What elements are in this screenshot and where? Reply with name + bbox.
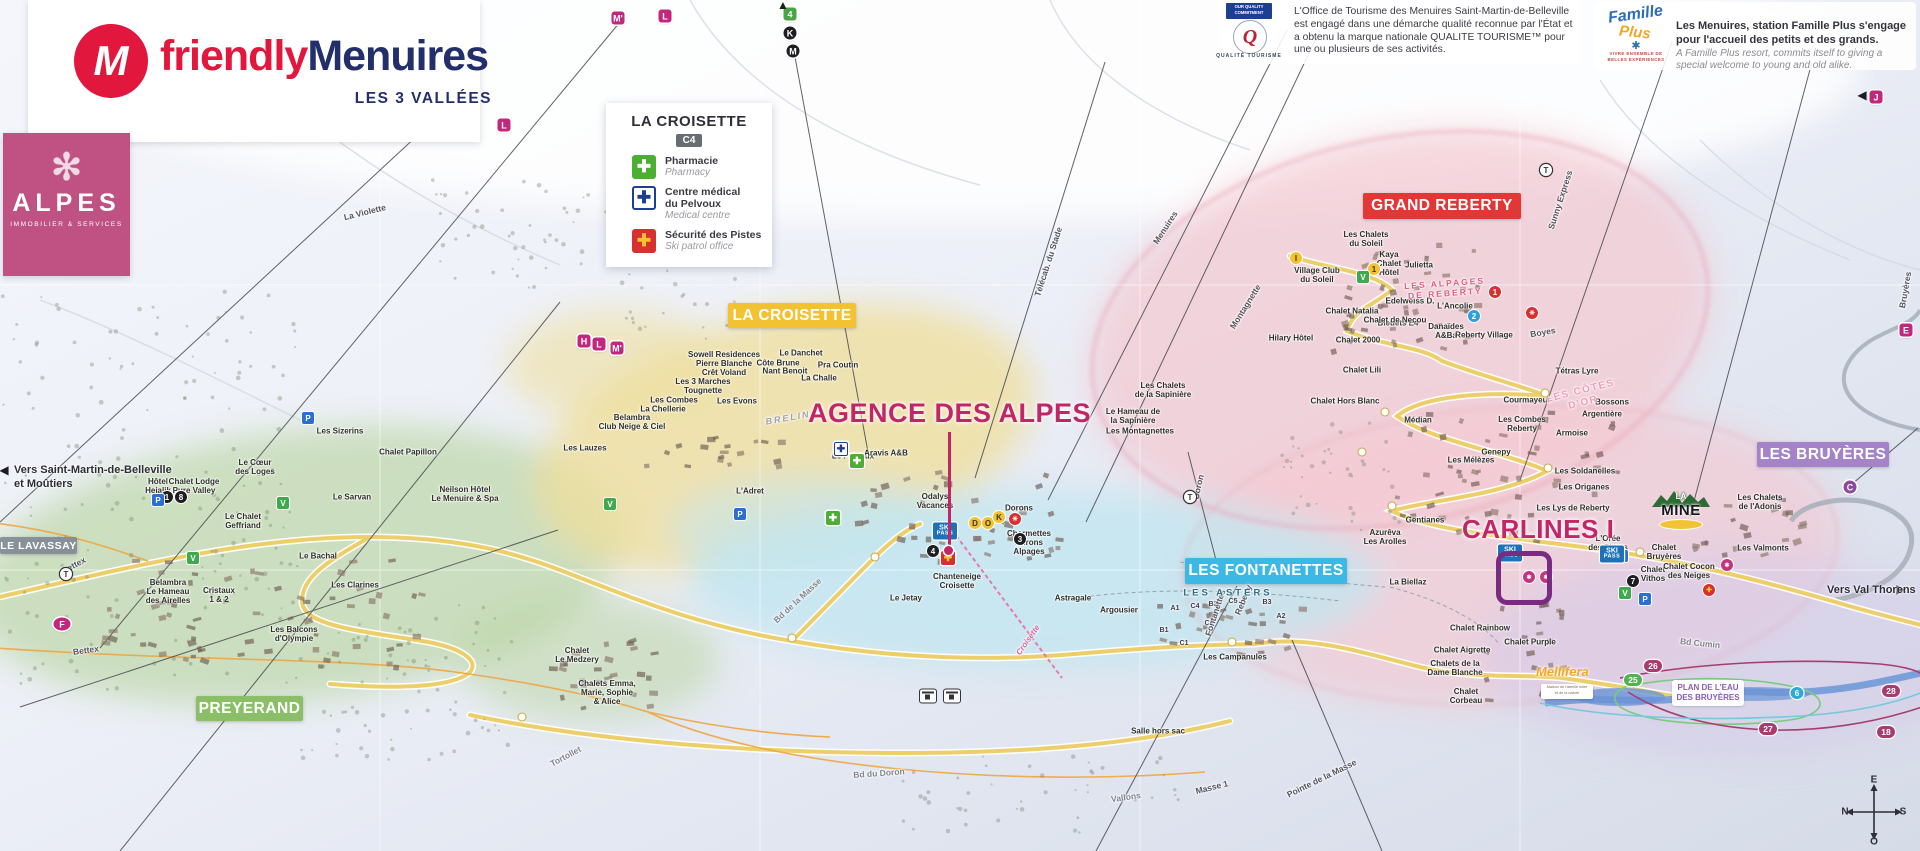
road-node	[1388, 502, 1397, 511]
way-label: Reberty	[1234, 583, 1255, 616]
lift-badge: E	[1900, 324, 1913, 337]
map-label: Danaïdes A&Ba	[1428, 322, 1464, 340]
map-label: Bossons	[1595, 397, 1629, 406]
alpes-snowflake-icon: ✻	[3, 149, 130, 187]
map-edge-arrow-icon: ◀	[1857, 88, 1866, 102]
way-label: Bettex	[72, 644, 99, 657]
way-label: Bd de la Masse	[772, 576, 824, 625]
famille-plus-tagline: VIVRE ENSEMBLE DE BELLES EXPÉRIENCES	[1600, 51, 1672, 63]
ski-pass-line2: PASS	[933, 532, 957, 538]
number-dot: 2	[1468, 310, 1480, 322]
compass-cross-icon	[1843, 778, 1905, 844]
map-label: Chalet Natalia	[1326, 306, 1379, 315]
map-label: Genepy	[1481, 447, 1510, 456]
road-node	[1228, 638, 1237, 647]
way-label: Menuires	[1152, 210, 1181, 247]
road-node	[788, 634, 797, 643]
direction-saint-martin: Vers Saint-Martin-de-Belleville et Moûti…	[14, 464, 172, 492]
gondola-icon	[943, 689, 961, 704]
la-mine-banner-oval	[1660, 520, 1702, 529]
map-label: Le Cœur des Loges	[235, 458, 275, 476]
map-label: Le Chalet Geffriand	[225, 512, 261, 530]
map-label: Les Combes	[650, 395, 698, 404]
map-label: Le Jetay	[890, 593, 922, 602]
map-label: Les Montagnettes	[1106, 426, 1174, 435]
legend-title: LA CROISETTE	[606, 113, 772, 130]
famille-plus-description: Les Menuires, station Famille Plus s'eng…	[1676, 20, 1912, 73]
number-dot: D	[969, 517, 981, 529]
map-label: Chalet 2000	[1336, 335, 1380, 344]
number-dot: V	[1357, 271, 1369, 283]
number-dot: I	[1290, 252, 1302, 264]
route-badge: 6	[1791, 687, 1804, 699]
medical-cross-icon: ✚	[632, 186, 656, 210]
area-label: LES ASTERS	[1183, 589, 1272, 600]
map-label: Tétras Lyre	[1556, 366, 1599, 375]
map-label: Chalet Bruyères	[1647, 543, 1682, 561]
legend-item-pharmacy: ✚ Pharmacie Pharmacy	[632, 155, 772, 179]
map-label: Chalet Papillon	[379, 447, 437, 456]
legend-item-sublabel: Medical centre	[665, 210, 740, 222]
map-label: Chalet Corbeau	[1450, 687, 1482, 705]
map-label: Belambra Le Hameau des Airelles	[146, 578, 191, 606]
map-label: Chalet Rainbow	[1450, 623, 1510, 632]
way-label: Bd du Doron	[853, 767, 905, 780]
way-label: Boyes	[1530, 326, 1557, 340]
road-node	[1381, 408, 1390, 417]
map-label: Chalet Cocon des Neiges	[1663, 562, 1715, 580]
map-label: B3	[1263, 599, 1272, 607]
les-3-vallees-label: LES 3 VALLÉES	[160, 90, 492, 108]
number-dot: V	[604, 498, 616, 510]
map-label: Armoise	[1556, 428, 1588, 437]
number-dot: P	[152, 494, 164, 506]
number-dot: K	[993, 511, 1005, 523]
number-dot: 1	[1368, 263, 1380, 275]
road-node	[1544, 464, 1553, 473]
area-label: BRELIN	[765, 409, 812, 427]
ski-pass-office-icon: SKIPASS	[933, 523, 957, 540]
way-label: Vallons	[1111, 791, 1142, 805]
number-dot: 8	[175, 491, 187, 503]
map-label: Les Origanes	[1559, 482, 1610, 491]
alpes-agency-logo-panel: ✻ ALPES IMMOBILIER & SERVICES	[3, 133, 130, 276]
lift-badge: M	[787, 45, 800, 58]
la-mine-logo: LA MINE	[1652, 490, 1710, 544]
map-label: Les Evons	[717, 396, 757, 405]
map-label: Astragale	[1055, 593, 1091, 602]
legend-grid-ref: C4	[676, 134, 702, 147]
map-label: Les Lauzes	[563, 443, 606, 452]
lift-badge: K	[784, 27, 797, 40]
map-label: Kaya Chalet Hôtel	[1377, 250, 1401, 278]
road-node	[1358, 448, 1367, 457]
number-dot: O	[982, 517, 994, 529]
lift-badge: L	[593, 338, 606, 351]
way-label: Fontanettes	[1204, 589, 1228, 638]
number-dot: ✱	[1721, 559, 1733, 571]
map-label: Dorons	[1005, 503, 1033, 512]
map-label: L'Adret	[736, 486, 764, 495]
map-label: C4	[1191, 603, 1200, 611]
agence-pointer-line	[948, 432, 951, 550]
plan-de-leau-label: PLAN DE L'EAU DES BRUYÈRES	[1672, 680, 1744, 706]
famille-plus-star-icon: ✱	[1600, 42, 1672, 51]
quality-tourism-description: L'Office de Tourisme des Menuires Saint-…	[1294, 6, 1580, 57]
route-badge: 28	[1882, 685, 1900, 697]
map-label: La Chellerie	[640, 404, 685, 413]
map-label: Les Mélèzes	[1448, 455, 1495, 464]
map-label: Neilson Hôtel Le Menuire & Spa	[431, 485, 498, 503]
map-label: Les Valmonts	[1737, 543, 1789, 552]
map-edge-arrow-icon: ◀	[0, 463, 9, 477]
way-label: Tortollet	[549, 745, 583, 769]
map-label: Chalet Vithos	[1641, 565, 1665, 583]
way-label: Masse 1	[1195, 779, 1229, 796]
map-label: Chalets Emma, Marie, Sophie & Alice	[578, 679, 635, 707]
map-label: Le Bachal	[299, 551, 337, 560]
map-label: Les Lys de Reberty	[1536, 503, 1609, 512]
famille-plus-text-en: A Famille Plus resort, commits itself to…	[1676, 48, 1912, 73]
mellifera-subtitle: Maison de l'abeille noire et de la natur…	[1541, 684, 1593, 699]
map-label: Reberty Village	[1455, 330, 1513, 339]
number-dot: ✚	[1703, 584, 1715, 596]
area-label: LES CÔTES D'OR	[1545, 377, 1619, 416]
agence-pointer-dot	[944, 546, 953, 555]
map-label: Chalet Hors Blanc	[1311, 396, 1380, 405]
compass-bottom: O	[1870, 837, 1878, 848]
compass-right: S	[1900, 807, 1907, 818]
compass-left: N	[1841, 807, 1848, 818]
region-banner: GRAND REBERTY	[1363, 193, 1521, 219]
ski-pass-office-icon: SKIPASS	[1600, 546, 1624, 563]
lift-badge: L	[659, 10, 672, 23]
alpes-agency-tagline: IMMOBILIER & SERVICES	[3, 221, 130, 228]
map-label: Pra Coutin	[818, 360, 858, 369]
route-badge: 18	[1877, 726, 1895, 738]
station-logo-panel: M friendlyMenuires LES 3 VALLÉES	[28, 0, 480, 142]
way-label: La Violette	[343, 203, 387, 223]
map-edge-arrow-icon: ▲	[777, 0, 789, 12]
way-label: Bd Cumin	[1680, 637, 1721, 651]
map-label: Nant Benoit	[763, 366, 808, 375]
station-logo-title: friendlyMenuires	[160, 32, 488, 81]
lift-badge: C	[1844, 481, 1857, 494]
map-label: Edelweiss D.	[1386, 296, 1435, 305]
map-label: Cristaux 1 & 2	[203, 586, 235, 604]
map-label: Hilary Hôtel	[1269, 333, 1313, 342]
way-label: Télécab. du Stade	[1033, 226, 1065, 298]
map-label: Chalet Lili	[1343, 365, 1381, 374]
famille-plus-logo-word2: Plus	[1618, 22, 1651, 42]
map-label: Les Sizerins	[317, 426, 364, 435]
map-label: Aravis A&B	[864, 448, 908, 457]
map-label: C5	[1229, 598, 1238, 606]
carlines-label: CARLINES I	[1462, 514, 1614, 545]
road-node	[518, 713, 527, 722]
map-label: C1	[1180, 640, 1189, 648]
number-dot: T	[1184, 491, 1196, 503]
legend-item-label: Centre médical du Pelvoux	[665, 186, 740, 210]
direction-val-thorens: Vers Val Thorens	[1827, 584, 1916, 598]
resort-map: LA CROISETTEGRAND REBERTYLES BRUYÈRESLES…	[0, 0, 1920, 851]
map-label: Julietta	[1405, 260, 1433, 269]
map-label: Les Chalets du Soleil	[1344, 230, 1389, 248]
region-banner: LE LAVASSAY	[0, 537, 77, 554]
map-label: Gentianes	[1406, 515, 1445, 524]
route-badge: 27	[1759, 723, 1777, 735]
number-dot: T	[60, 568, 72, 580]
number-dot: 7	[1627, 575, 1639, 587]
road-node	[1541, 389, 1550, 398]
menuires-m-logo-icon: M	[74, 24, 148, 98]
map-label: Village Club du Soleil	[1294, 266, 1340, 284]
map-label: Chanteneige Croisette	[933, 572, 981, 590]
map-label: Chalet Aigrette	[1434, 645, 1491, 654]
map-label: Les Clarines	[331, 580, 379, 589]
map-label: Côte Brune	[756, 358, 799, 367]
map-label: Argentière	[1582, 409, 1622, 418]
mellifera-label: Mellifera	[1536, 664, 1589, 679]
carlines-highlight-box	[1496, 551, 1552, 605]
ski-pass-line2: PASS	[1600, 555, 1624, 561]
number-dot: V	[277, 497, 289, 509]
map-label: Médian	[1404, 415, 1432, 424]
lift-badge: J	[1870, 91, 1883, 104]
lift-badge: M'	[612, 12, 625, 25]
compass-top: E	[1871, 775, 1878, 786]
map-label: Salle hors sac	[1131, 726, 1185, 735]
qualite-tourisme-label: QUALITÉ TOURISME	[1214, 53, 1284, 60]
region-banner: LES FONTANETTES	[1185, 558, 1347, 584]
number-dot: ✳	[1009, 513, 1021, 525]
number-dot: T	[1540, 164, 1552, 176]
lift-badge: M'	[611, 342, 624, 355]
legend-item-sublabel: Pharmacy	[665, 167, 718, 179]
way-label: Sunny Express	[1547, 169, 1575, 230]
famille-plus-logo: FamillePlus ✱ VIVRE ENSEMBLE DE BELLES E…	[1600, 6, 1672, 64]
logo-friendly: friendly	[160, 32, 307, 80]
map-label: Chalet de Necou	[1364, 315, 1427, 324]
number-dot: V	[1619, 587, 1631, 599]
way-label: Bruyères	[1898, 271, 1914, 309]
qualite-tourisme-logo-icon: Q	[1233, 20, 1267, 54]
number-dot: P	[1639, 593, 1651, 605]
medical-cross-icon: ✚	[834, 442, 848, 456]
map-label: Chalets de la Dame Blanche	[1427, 659, 1482, 677]
map-label: Azurêva Les Arolles	[1364, 528, 1407, 546]
map-label: A2	[1277, 613, 1286, 621]
map-label: Les Chalets de la Sapinière	[1135, 381, 1191, 399]
road-node	[871, 553, 880, 562]
logo-menuires: Menuires	[307, 32, 488, 80]
map-label: Les 3 Marches Tougnette	[675, 377, 730, 395]
map-label: Le Danchet	[779, 348, 822, 357]
map-label: L'Ancolie	[1437, 301, 1473, 310]
map-label: Bleuets E4	[1378, 318, 1419, 327]
map-label: Le Hameau de la Sapinière	[1106, 407, 1160, 425]
way-label: Pointe de la Masse	[1286, 758, 1359, 800]
map-label: La Biellaz	[1390, 577, 1427, 586]
quality-commitment-badge: OUR QUALITY COMMITMENT	[1226, 3, 1272, 19]
map-label: A1	[1171, 605, 1180, 613]
pharmacy-cross-icon: ✚	[826, 511, 840, 525]
legend-item-label: Pharmacie	[665, 155, 718, 167]
gondola-icon	[919, 689, 937, 704]
map-label: Chalet Le Medzery	[555, 646, 599, 664]
map-label: Belambra Club Neige & Ciel	[599, 413, 666, 431]
ski-patrol-cross-icon: ✚	[632, 229, 656, 253]
lift-badge: H	[578, 335, 591, 348]
lift-badge: F	[54, 618, 71, 631]
number-dot: P	[734, 508, 746, 520]
map-label: Le Sarvan	[333, 492, 371, 501]
way-label: Montagnette	[1228, 283, 1263, 331]
number-dot: P	[302, 412, 314, 424]
number-dot: 4	[927, 545, 939, 557]
agence-des-alpes-label: AGENCE DES ALPES	[808, 398, 1091, 429]
route-badge: 25	[1624, 674, 1642, 686]
map-label: B2	[1209, 601, 1218, 609]
area-label: Croisette	[1014, 623, 1041, 657]
map-label: La Challe	[801, 373, 837, 382]
alpes-agency-name: ALPES	[3, 189, 130, 218]
region-banner: PREYERAND	[196, 696, 303, 721]
pharmacy-cross-icon: ✚	[850, 454, 864, 468]
legend-item-medical-centre: ✚ Centre médical du Pelvoux Medical cent…	[632, 186, 772, 222]
region-banner: LES BRUYÈRES	[1757, 442, 1889, 467]
number-dot: 3	[1014, 533, 1026, 545]
pharmacy-cross-icon: ✚	[632, 155, 656, 179]
area-label: LES ALPAGES DE REBERTY	[1404, 276, 1486, 301]
map-label: Charmettes Burons Alpages	[1007, 529, 1051, 557]
number-dot: ✳	[1526, 307, 1538, 319]
famille-plus-text-fr: Les Menuires, station Famille Plus s'eng…	[1676, 20, 1912, 48]
map-label: Les Campanules	[1203, 652, 1267, 661]
map-label: Les Soldanelles	[1555, 466, 1615, 475]
route-badge: 26	[1644, 660, 1662, 672]
legend-item-label: Sécurité des Pistes	[665, 229, 761, 241]
legend-item-sublabel: Ski patrol office	[665, 241, 761, 253]
compass-rose: E S O N	[1843, 778, 1905, 844]
road-node	[1636, 548, 1645, 557]
number-dot: V	[187, 552, 199, 564]
map-label: Les Combes Reberty	[1498, 415, 1546, 433]
lift-badge: L	[498, 119, 511, 132]
map-label: Argousier	[1100, 605, 1138, 614]
map-label: Les Chalets de l'Adonis	[1738, 493, 1783, 511]
map-label: Les Balcons d'Olympie	[270, 625, 317, 643]
number-dot: 1	[1489, 286, 1501, 298]
legend-item-ski-patrol: ✚ Sécurité des Pistes Ski patrol office	[632, 229, 772, 253]
la-croisette-legend: LA CROISETTE C4 ✚ Pharmacie Pharmacy ✚ C…	[606, 103, 772, 267]
region-banner: LA CROISETTE	[728, 303, 856, 328]
map-label: Sowell Residences Pierre Blanche Crêt Vo…	[688, 350, 760, 378]
map-label: Chalet Purple	[1504, 637, 1556, 646]
map-label: C3	[1205, 620, 1214, 628]
map-label: B1	[1160, 627, 1169, 635]
